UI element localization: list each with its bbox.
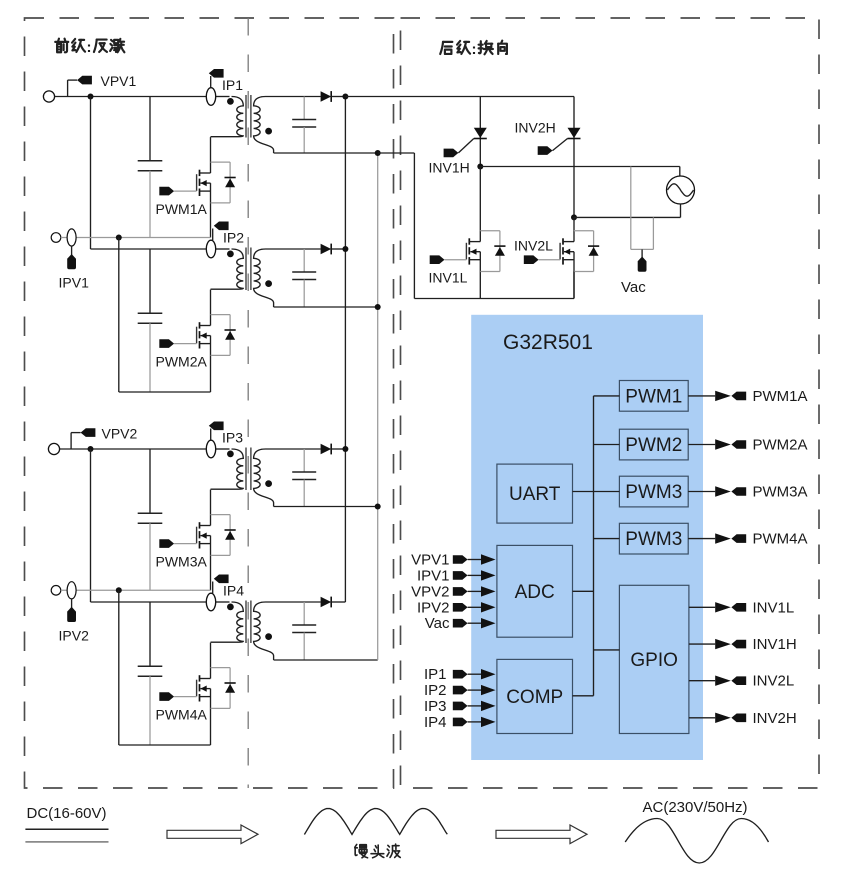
svg-text:IPV2: IPV2 [59, 627, 90, 643]
svg-text:IP3: IP3 [424, 698, 447, 715]
svg-text:DC(16-60V): DC(16-60V) [27, 805, 107, 822]
svg-text:INV1H: INV1H [753, 636, 797, 653]
svg-text:VPV1: VPV1 [101, 73, 137, 89]
svg-text:PWM2A: PWM2A [753, 437, 808, 454]
svg-text:IP1: IP1 [222, 77, 243, 93]
svg-text:PWM4A: PWM4A [156, 707, 208, 723]
svg-text:G32R501: G32R501 [503, 331, 593, 354]
svg-text::: : [472, 41, 477, 58]
svg-text:PWM2A: PWM2A [156, 354, 208, 370]
svg-text:PWM1A: PWM1A [156, 201, 208, 217]
svg-text:PWM3: PWM3 [625, 482, 682, 503]
svg-text:PWM3: PWM3 [625, 529, 682, 550]
svg-text:VPV2: VPV2 [411, 583, 449, 600]
svg-text:IP2: IP2 [223, 230, 244, 246]
svg-text:PWM1A: PWM1A [753, 388, 808, 405]
svg-text:PWM3A: PWM3A [753, 484, 808, 501]
svg-text:AC(230V/50Hz): AC(230V/50Hz) [643, 799, 748, 816]
svg-text:COMP: COMP [506, 687, 563, 708]
svg-text:INV2H: INV2H [515, 120, 556, 136]
svg-text:INV1H: INV1H [429, 160, 470, 176]
svg-text::: : [87, 39, 92, 56]
svg-text:INV2L: INV2L [753, 673, 795, 690]
svg-text:PWM1: PWM1 [625, 386, 682, 407]
svg-text:IPV2: IPV2 [417, 599, 450, 616]
svg-text:ADC: ADC [515, 582, 555, 603]
svg-text:VPV1: VPV1 [411, 552, 449, 569]
svg-text:IP2: IP2 [424, 682, 447, 699]
svg-text:Vac: Vac [425, 615, 450, 632]
svg-text:IP4: IP4 [223, 583, 244, 599]
svg-text:INV1L: INV1L [753, 599, 795, 616]
svg-text:INV2H: INV2H [753, 710, 797, 727]
svg-text:IPV1: IPV1 [417, 567, 450, 584]
svg-text:IP4: IP4 [424, 714, 447, 731]
svg-text:PWM3A: PWM3A [156, 554, 208, 570]
svg-text:Vac: Vac [621, 279, 646, 296]
svg-text:IP1: IP1 [424, 666, 447, 683]
svg-text:VPV2: VPV2 [102, 426, 138, 442]
svg-text:PWM2: PWM2 [625, 435, 682, 456]
svg-text:UART: UART [509, 484, 561, 505]
svg-text:IP3: IP3 [222, 430, 243, 446]
svg-text:INV2L: INV2L [514, 238, 553, 254]
svg-text:PWM4A: PWM4A [753, 531, 808, 548]
svg-text:INV1L: INV1L [429, 270, 468, 286]
svg-text:IPV1: IPV1 [59, 275, 90, 291]
svg-text:GPIO: GPIO [630, 650, 678, 671]
